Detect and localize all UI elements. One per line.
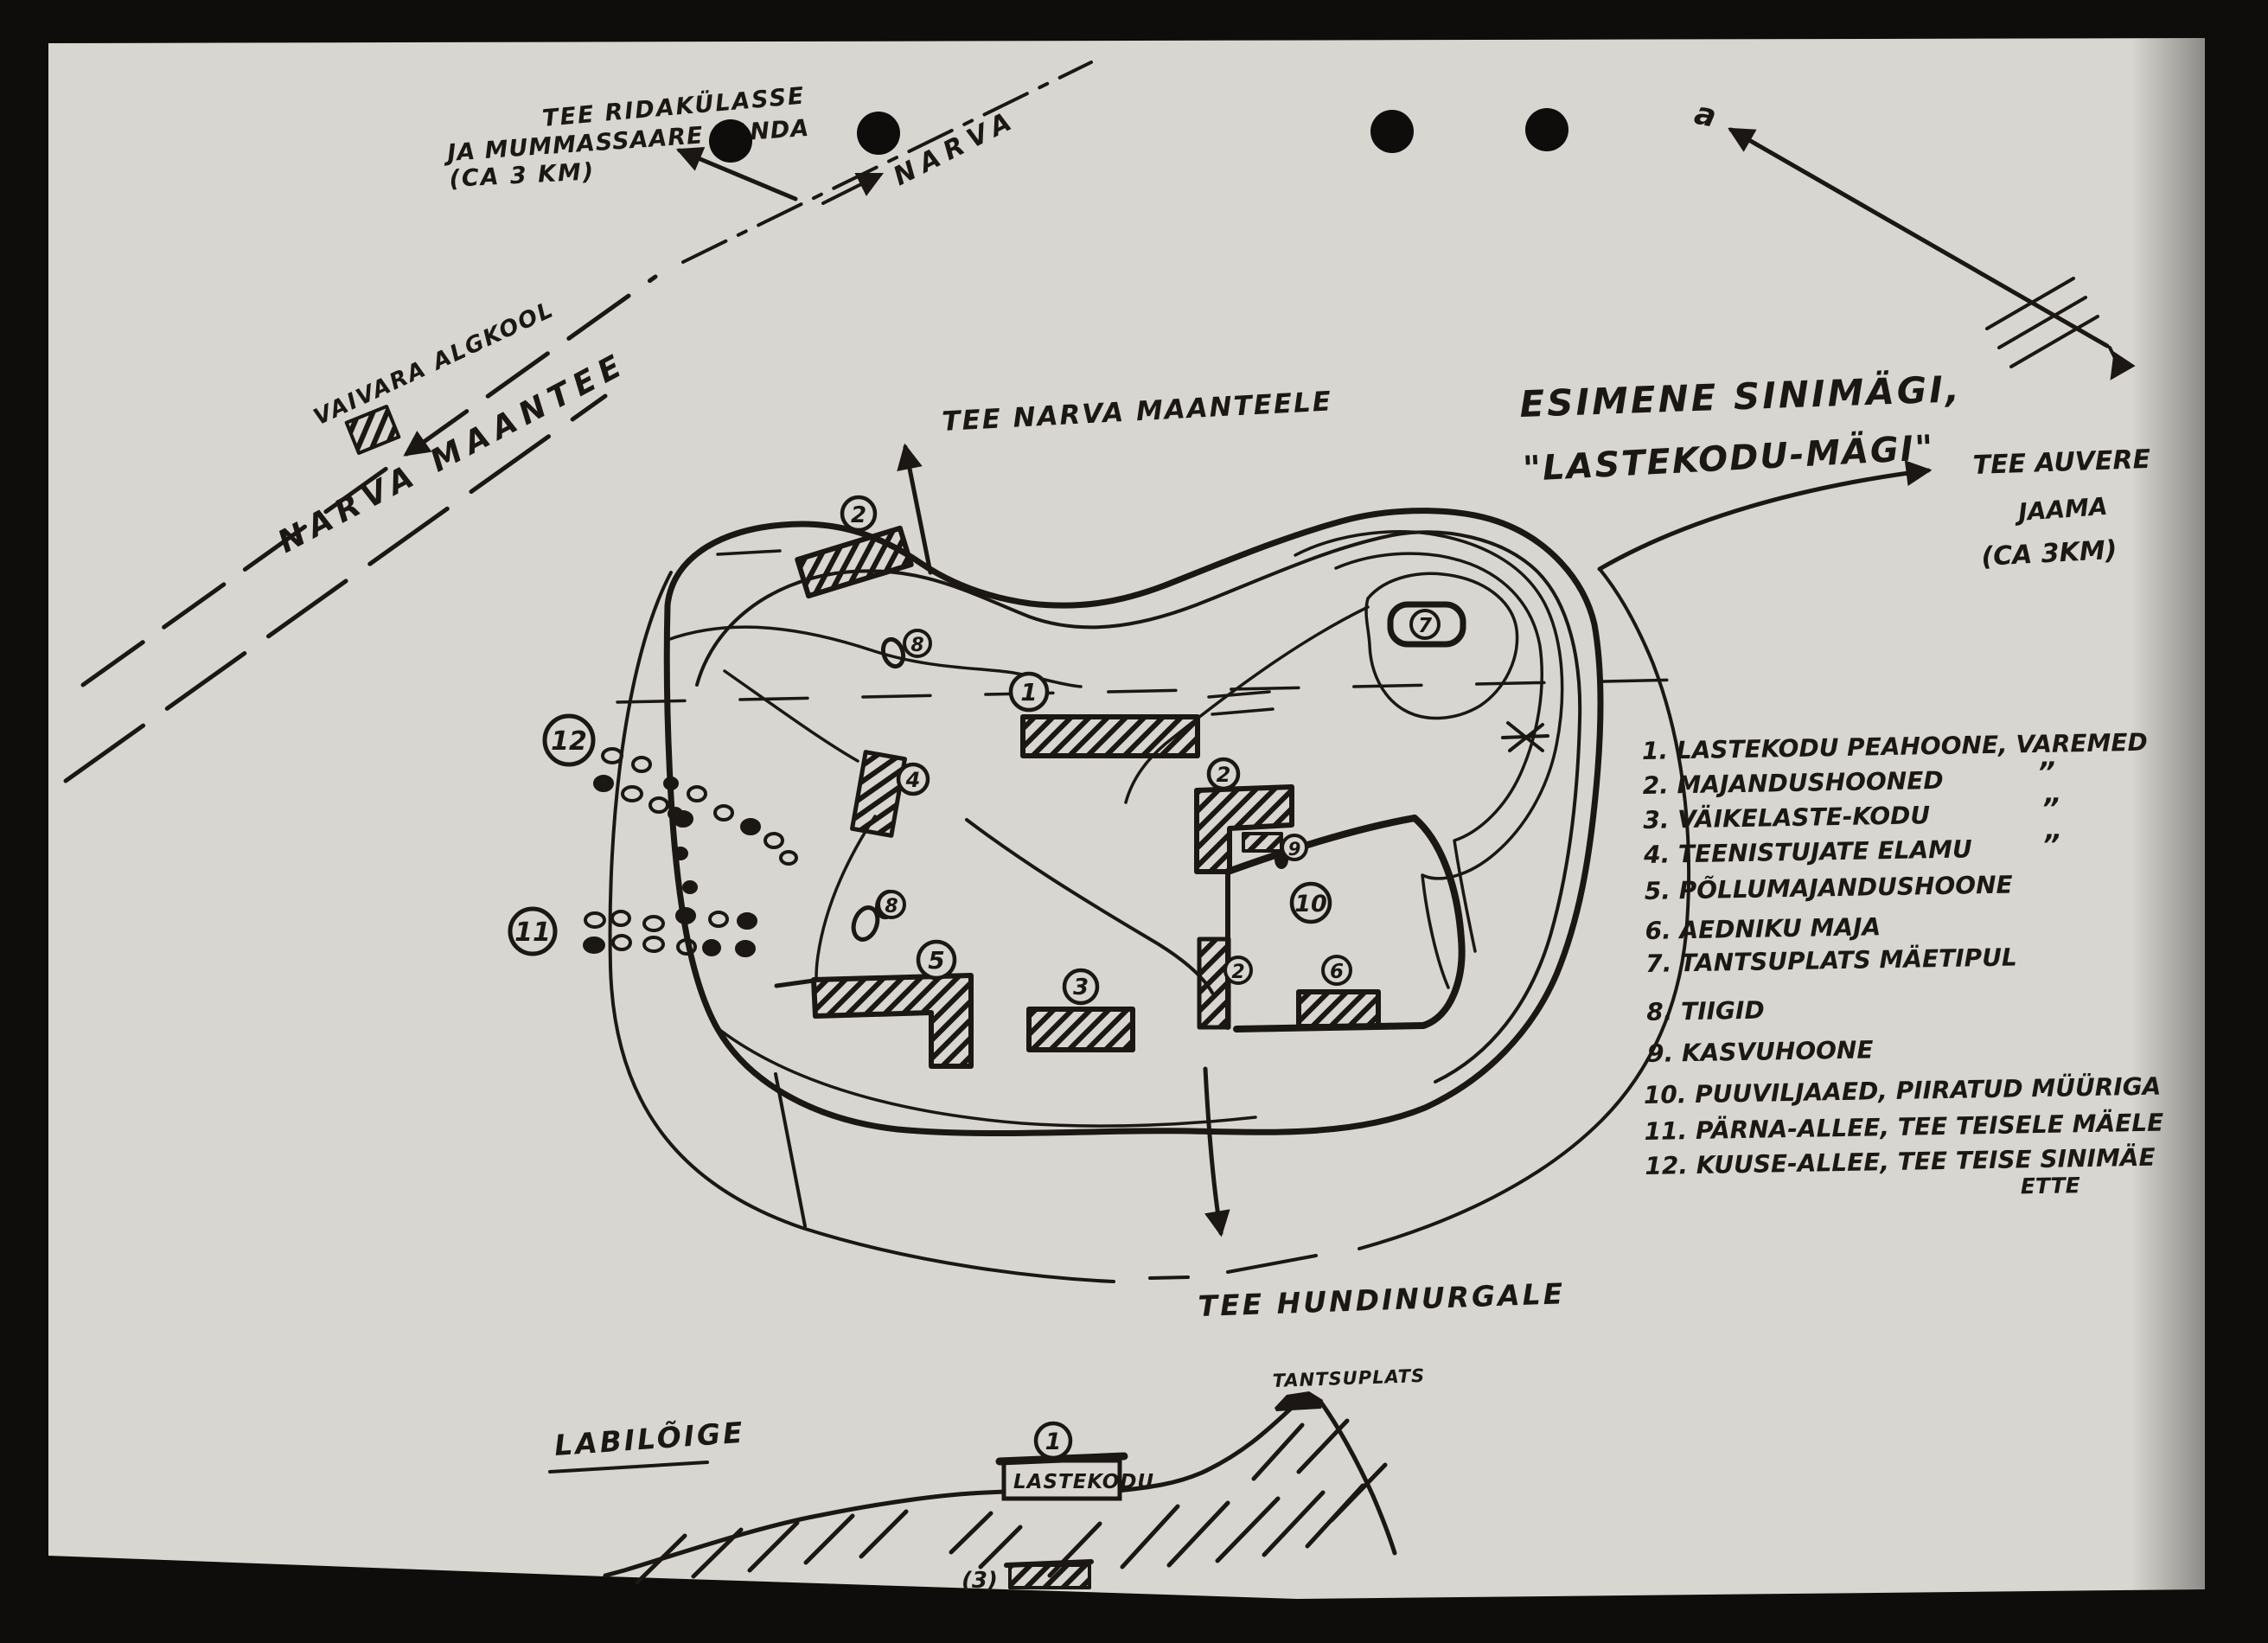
marker-9: 9 bbox=[1288, 839, 1301, 860]
marker-11: 11 bbox=[514, 917, 551, 948]
marker-2c: 2 bbox=[1231, 962, 1244, 983]
legend-item-6: 6. AEDNIKU MAJA bbox=[1645, 912, 1881, 945]
cross-section-item-3: (3) bbox=[962, 1568, 998, 1594]
legend-ditto-3: ” bbox=[2041, 792, 2060, 825]
marker-5: 5 bbox=[928, 946, 944, 975]
building-3-childrens-home bbox=[1029, 1009, 1133, 1050]
marker-4: 4 bbox=[905, 768, 921, 792]
marker-3: 3 bbox=[1073, 975, 1089, 1001]
legend-item-8: 8. TIIGID bbox=[1646, 996, 1765, 1026]
building-1-main bbox=[1023, 717, 1198, 756]
punch-hole bbox=[857, 112, 900, 155]
punch-hole bbox=[709, 119, 752, 163]
legend-ditto-2: ” bbox=[2037, 756, 2055, 789]
marker-8b: 8 bbox=[885, 896, 898, 917]
cross-section-marker-1: 1 bbox=[1045, 1429, 1062, 1455]
legend-item-4: 4. TEENISTUJATE ELAMU bbox=[1643, 834, 1972, 869]
building-6-gardener bbox=[1299, 992, 1378, 1026]
label-auvere-1: TEE AUVERE bbox=[1972, 444, 2151, 481]
marker-8a: 8 bbox=[910, 635, 923, 656]
marker-6: 6 bbox=[1330, 961, 1344, 983]
legend-item-12-cont: ETTE bbox=[2021, 1173, 2080, 1199]
paper-edge-shadow bbox=[2131, 38, 2205, 1590]
marker-10: 10 bbox=[1294, 891, 1327, 917]
scanned-document: 1 2 2 2 3 4 5 6 7 8 8 9 10 11 12 TEE RID… bbox=[0, 0, 2268, 1643]
marker-12: 12 bbox=[551, 726, 587, 757]
punch-hole bbox=[1370, 110, 1414, 153]
label-lastekodu: LASTEKODU bbox=[1013, 1471, 1154, 1493]
punch-hole bbox=[1525, 108, 1568, 151]
building-2c bbox=[1199, 939, 1229, 1027]
legend-item-2: 2. MAJANDUSHOONED bbox=[1642, 766, 1943, 800]
building-9-greenhouse bbox=[1243, 834, 1281, 851]
legend-item-9: 9. KASVUHOONE bbox=[1647, 1035, 1874, 1068]
legend-item-3: 3. VÄIKELASTE-KODU bbox=[1643, 800, 1931, 834]
hand-drawn-map-scan: 1 2 2 2 3 4 5 6 7 8 8 9 10 11 12 TEE RID… bbox=[0, 0, 2268, 1643]
marker-2b: 2 bbox=[1217, 763, 1231, 787]
marker-2a: 2 bbox=[851, 502, 866, 528]
marker-1: 1 bbox=[1020, 678, 1037, 706]
legend-ditto-4: ” bbox=[2042, 828, 2060, 861]
marker-7: 7 bbox=[1418, 615, 1432, 637]
